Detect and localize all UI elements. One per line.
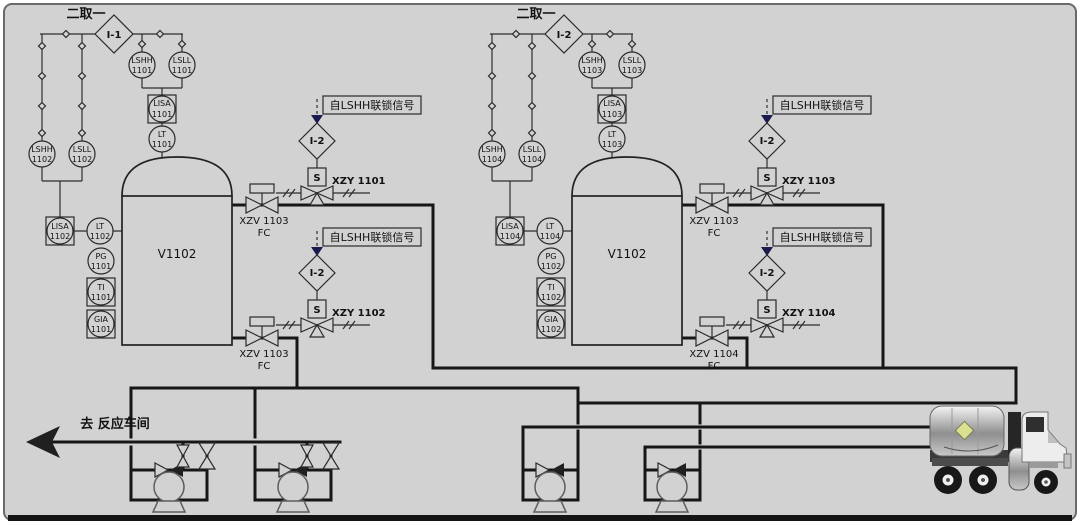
tag-num: 1103: [602, 140, 622, 149]
voting-label: 二取一: [66, 7, 105, 22]
tag-num: 1101: [152, 110, 172, 119]
tag: LSLL: [173, 56, 192, 65]
solenoid-letter: S: [313, 305, 320, 316]
tag-num: 1101: [152, 140, 172, 149]
tag-num: 1103: [582, 66, 602, 75]
xzv-tag: XZV 1103: [239, 349, 288, 360]
tag: LSHH: [481, 145, 503, 154]
interlock-tag: I-1: [107, 30, 122, 41]
tag: TI: [546, 283, 554, 292]
tag-num: 1101: [91, 262, 111, 271]
tag-num: 1101: [91, 293, 111, 302]
tag: LSHH: [31, 145, 53, 154]
signal-label: 自LSHH联锁信号: [780, 98, 865, 112]
pump-1: [153, 472, 185, 512]
tag: LISA: [153, 99, 171, 108]
tag: LSHH: [131, 56, 153, 65]
tag-num: 1101: [132, 66, 152, 75]
xzy-tag: XZY 1101: [332, 176, 386, 187]
signal-label: 自LSHH联锁信号: [780, 230, 865, 244]
vessel-tag: V1102: [158, 247, 197, 261]
tag-num: 1102: [541, 325, 561, 334]
tag: PG: [545, 252, 556, 261]
interlock-tag: I-2: [310, 268, 325, 279]
signal-label: 自LSHH联锁信号: [330, 230, 415, 244]
tag: GIA: [544, 315, 559, 324]
pid-diagram: 去 反应车间 二取一 I-1: [0, 0, 1080, 528]
cab-step: [1030, 462, 1058, 468]
xzv-tag: XZV 1103: [689, 216, 738, 227]
vessel: V1102: [572, 157, 682, 345]
signal-label: 自LSHH联锁信号: [330, 98, 415, 112]
tag-num: 1102: [32, 155, 52, 164]
solenoid-letter: S: [763, 173, 770, 184]
truck-bumper: [1064, 454, 1071, 468]
tag-num: 1102: [541, 293, 561, 302]
tag-num: 1103: [602, 110, 622, 119]
tag-num: 1102: [90, 232, 110, 241]
tag: LT: [158, 130, 166, 139]
vessel-tag: V1102: [608, 247, 647, 261]
tag-num: 1102: [72, 155, 92, 164]
fail-mode: FC: [708, 361, 721, 372]
xzv-tag: XZV 1103: [239, 216, 288, 227]
vessel: V1102: [122, 157, 232, 345]
tag-num: 1102: [541, 262, 561, 271]
pump-3: [534, 472, 566, 512]
tag: LT: [96, 222, 104, 231]
tag-num: 1104: [500, 232, 520, 241]
cab-window: [1026, 417, 1044, 432]
xzy-tag: XZY 1103: [782, 176, 836, 187]
truck-fender: [932, 458, 1008, 466]
tag-num: 1102: [50, 232, 70, 241]
tag-num: 1104: [522, 155, 542, 164]
tag: LSLL: [623, 56, 642, 65]
interlock-tag: I-2: [557, 30, 572, 41]
tag-num: 1104: [540, 232, 560, 241]
tag: LSHH: [581, 56, 603, 65]
xzv-tag: XZV 1104: [689, 349, 738, 360]
tag: LSLL: [73, 145, 92, 154]
tag: LT: [608, 130, 616, 139]
solenoid-letter: S: [313, 173, 320, 184]
tag-num: 1101: [91, 325, 111, 334]
tag: LISA: [51, 222, 69, 231]
tag: PG: [95, 252, 106, 261]
xzy-tag: XZY 1104: [782, 308, 836, 319]
tag: LT: [546, 222, 554, 231]
pump-2: [277, 472, 309, 512]
fail-mode: FC: [258, 361, 271, 372]
pump-4: [656, 472, 688, 512]
tag-num: 1103: [622, 66, 642, 75]
xzy-tag: XZY 1102: [332, 308, 386, 319]
tag-num: 1101: [172, 66, 192, 75]
solenoid-letter: S: [763, 305, 770, 316]
fail-mode: FC: [708, 228, 721, 239]
tag: TI: [96, 283, 104, 292]
destination-label: 去 反应车间: [80, 416, 150, 432]
tag: GIA: [94, 315, 109, 324]
interlock-tag: I-2: [760, 136, 775, 147]
interlock-tag: I-2: [760, 268, 775, 279]
tag: LSLL: [523, 145, 542, 154]
tag: LISA: [603, 99, 621, 108]
fail-mode: FC: [258, 228, 271, 239]
voting-label: 二取一: [516, 7, 555, 22]
tag: LISA: [501, 222, 519, 231]
interlock-tag: I-2: [310, 136, 325, 147]
tag-num: 1104: [482, 155, 502, 164]
